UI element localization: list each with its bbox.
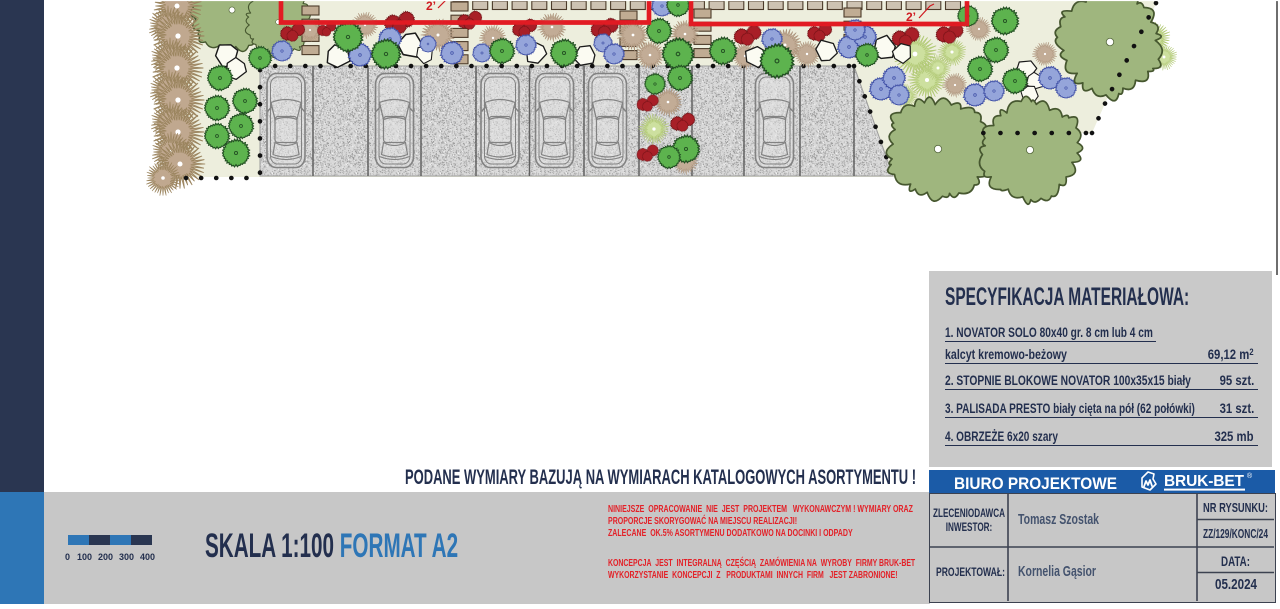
svg-text:®: ®	[1247, 472, 1253, 480]
svg-text:2’: 2’	[426, 0, 436, 13]
svg-text:BRUK-BET: BRUK-BET	[1164, 473, 1245, 490]
